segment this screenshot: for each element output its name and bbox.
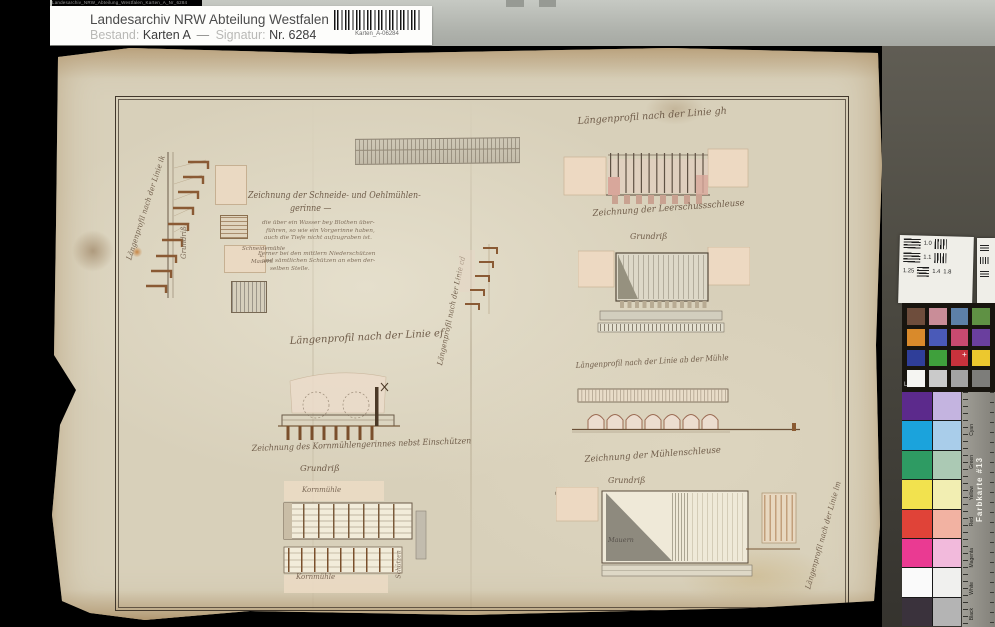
resolution-bars (934, 253, 946, 263)
resolution-bars (903, 252, 920, 262)
resolution-bars (980, 257, 989, 264)
resolution-bars (904, 238, 921, 248)
color-name-label: White (969, 582, 975, 595)
color-patch (907, 308, 925, 325)
resolution-bars (980, 244, 989, 251)
strip-patch (902, 451, 932, 479)
strip-patch (902, 568, 932, 596)
label-grundriss-left: Grundriß (181, 207, 188, 259)
scanner-clip-right (539, 0, 556, 7)
barcode-label: Karten_A-06284 (334, 31, 420, 37)
color-patch (907, 370, 925, 387)
stain-top-edge (50, 45, 882, 79)
color-patch (951, 370, 969, 387)
strip-patch (933, 598, 961, 626)
strip-patch (933, 539, 961, 567)
archive-signature-line: Bestand: Karten A — Signatur: Nr. 6284 (90, 28, 316, 42)
map-sheet: Längenprofil nach der Linie ik Grundriß … (50, 45, 882, 620)
title-note: Ferner bei den mittlern Niederschützen (258, 251, 398, 259)
strip-patch (902, 598, 932, 626)
label-mauern: Mauern (608, 537, 634, 544)
drawing-muehlenschleuse-plan (556, 487, 802, 583)
title-line2: gerinne — (290, 204, 385, 214)
resolution-bars (935, 239, 947, 249)
resolution-test-card: 1.0 1.1 1.25 1.4 1.8 (898, 235, 974, 305)
title-note: selben Stelle. (270, 266, 398, 274)
strip-patch (933, 480, 961, 508)
color-patch (929, 370, 947, 387)
archival-scan-viewport: Landesarchiv_NRW_Abteilung_Westfalen_Kar… (0, 0, 995, 627)
strip-patch (933, 510, 961, 538)
title-line1: Zeichnung der Schneide- und Oehlmühlen- (248, 191, 380, 201)
gray-ruler: Farbkarte #13 Cyan Green Yellow Red Mage… (962, 392, 995, 627)
title-note: die über ein Wasser bey Blothen über- (262, 220, 398, 228)
color-name-label: Yellow (969, 486, 975, 500)
color-patch (972, 350, 990, 367)
registration-mark: + (962, 351, 967, 359)
color-patch (951, 329, 969, 346)
strip-patch (902, 392, 932, 420)
farbkarte-title: Farbkarte #13 (975, 402, 984, 522)
color-patch (972, 370, 990, 387)
strip-patch (933, 451, 961, 479)
resolution-row: 1.25 1.4 1.8 (903, 266, 971, 278)
color-patch (907, 329, 925, 346)
resolution-test-card-partial (977, 238, 995, 304)
strip-patch (933, 568, 961, 596)
corner-mark: L (904, 382, 907, 388)
color-name-label: Black (969, 608, 975, 620)
title-note: und sämtlichen Schützen an eben der- (262, 258, 398, 266)
drawing-center-profile (278, 353, 403, 453)
color-patch (907, 350, 925, 367)
color-patch (929, 329, 947, 346)
resolution-number: 1.1 (923, 255, 931, 261)
color-name-label: Green (969, 455, 975, 469)
color-patch (929, 350, 947, 367)
strip-patch (933, 421, 961, 449)
drawing-leerschuss-plan (578, 247, 750, 337)
resolution-row: 1.0 (904, 238, 972, 250)
drawing-left-plan-block-1 (215, 165, 247, 205)
strip-patch (902, 510, 932, 538)
resolution-bars (917, 267, 929, 277)
color-patch (929, 308, 947, 325)
stain-spot-left (72, 230, 114, 272)
strip-patch (902, 539, 932, 567)
archive-name: Landesarchiv NRW Abteilung Westfalen (90, 12, 329, 27)
drawing-kornmuehle-plan (278, 481, 430, 609)
archive-label-card: Landesarchiv NRW Abteilung Westfalen Bes… (50, 6, 432, 45)
drawing-top-profile-strip (355, 137, 520, 165)
title-note: führen, so wie ein Vorgerinne haben, (266, 228, 398, 236)
label-kornmuehle-top: Kornmühle (302, 487, 341, 494)
resolution-number: 1.0 (924, 241, 932, 247)
resolution-row: 1.1 (903, 252, 971, 264)
drawing-center-small-profile (455, 242, 505, 322)
colorchecker-chart (902, 303, 995, 392)
color-name-label: Magenta (969, 548, 975, 567)
bestand-value: Karten A (143, 28, 190, 42)
drawing-left-plan-block-4 (231, 281, 267, 313)
label-grundriss-bottomright: Grundriß (608, 476, 645, 485)
strip-patch (902, 421, 932, 449)
drawing-left-profile (128, 150, 223, 300)
label-grundriss-right: Grundriß (630, 232, 667, 241)
color-patch (972, 308, 990, 325)
drawing-arcade-profile (570, 387, 806, 449)
drawing-left-plan-block-2 (220, 215, 248, 239)
strip-patch (933, 392, 961, 420)
label-kornmuehle-bottom: Kornmühle (296, 574, 335, 581)
calibration-targets: 1.0 1.1 1.25 1.4 1.8 (882, 46, 995, 627)
bestand-label: Bestand: (90, 28, 139, 42)
color-name-label: Cyan (969, 424, 975, 436)
resolution-bars (980, 270, 989, 277)
signatur-label: Signatur: (216, 28, 266, 42)
label-grundriss-bottomleft: Grundriß (300, 464, 340, 474)
resolution-number: 1.8 (943, 269, 951, 275)
title-block: Zeichnung der Schneide- und Oehlmühlen- … (248, 191, 398, 273)
color-calibration-strip (902, 392, 961, 626)
color-patch (972, 329, 990, 346)
color-name-label: Red (969, 517, 975, 526)
scanner-clip-left (506, 0, 524, 7)
signatur-value: Nr. 6284 (269, 28, 316, 42)
resolution-number: 1.25 (903, 268, 914, 274)
resolution-number: 1.4 (932, 269, 940, 275)
separator: — (194, 28, 213, 42)
strip-patch (902, 480, 932, 508)
color-patch (951, 308, 969, 325)
barcode (334, 10, 420, 30)
title-note: auch die Tiefe nicht aufzugraben ist. (264, 235, 398, 243)
label-schuetzen: Schützen (397, 550, 404, 578)
